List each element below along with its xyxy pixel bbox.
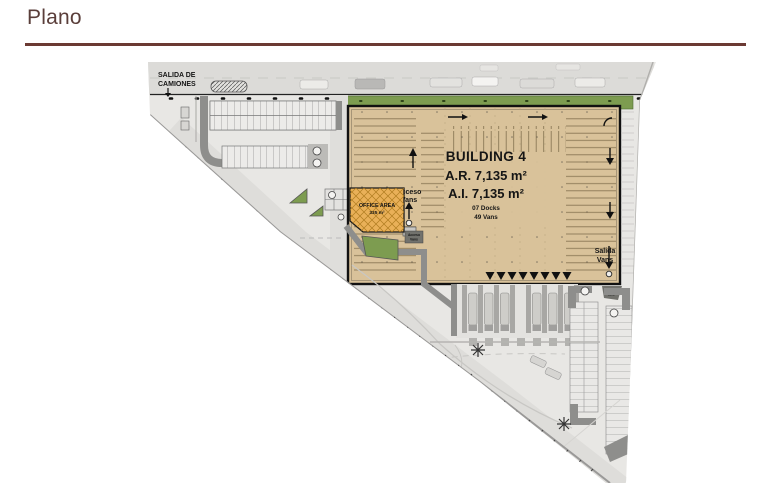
stall-count-badge bbox=[313, 147, 321, 155]
building-ai: A.I. 7,135 m² bbox=[448, 186, 525, 201]
stall-count-badge bbox=[610, 309, 618, 317]
slide-page: Plano bbox=[0, 0, 770, 483]
building-vans: 49 Vans bbox=[474, 214, 498, 221]
office-area: OFFICE AREA 335 m² bbox=[350, 188, 404, 232]
salida-camiones-label-1: SALIDA DE bbox=[158, 72, 196, 79]
dock-yard bbox=[451, 284, 579, 346]
rack-lines bbox=[421, 130, 444, 230]
tree-icon bbox=[557, 417, 571, 431]
office-area-label: OFFICE AREA bbox=[359, 203, 395, 209]
stall-count-badge bbox=[581, 287, 589, 295]
salida-vans-label-1: Salida bbox=[595, 248, 616, 255]
green-patch bbox=[362, 236, 398, 260]
svg-text:Acceso: Acceso bbox=[408, 233, 420, 237]
building-name: BUILDING 4 bbox=[446, 149, 527, 164]
svg-text:Vans: Vans bbox=[410, 238, 418, 242]
top-road bbox=[148, 62, 654, 99]
office-area-size: 335 m² bbox=[369, 210, 385, 216]
stall-count-badge bbox=[313, 159, 321, 167]
site-plan: BUILDING 4 A.R. 7,135 m² A.I. 7,135 m² 0… bbox=[0, 0, 770, 483]
tree-icon bbox=[471, 343, 485, 357]
rack-lines bbox=[354, 114, 416, 182]
salida-camiones-label-2: CAMIONES bbox=[158, 81, 196, 88]
building-ar: A.R. 7,135 m² bbox=[445, 168, 527, 183]
acceso-gate-box: Acceso Vans bbox=[405, 231, 423, 243]
building-docks: 07 Docks bbox=[472, 205, 500, 212]
